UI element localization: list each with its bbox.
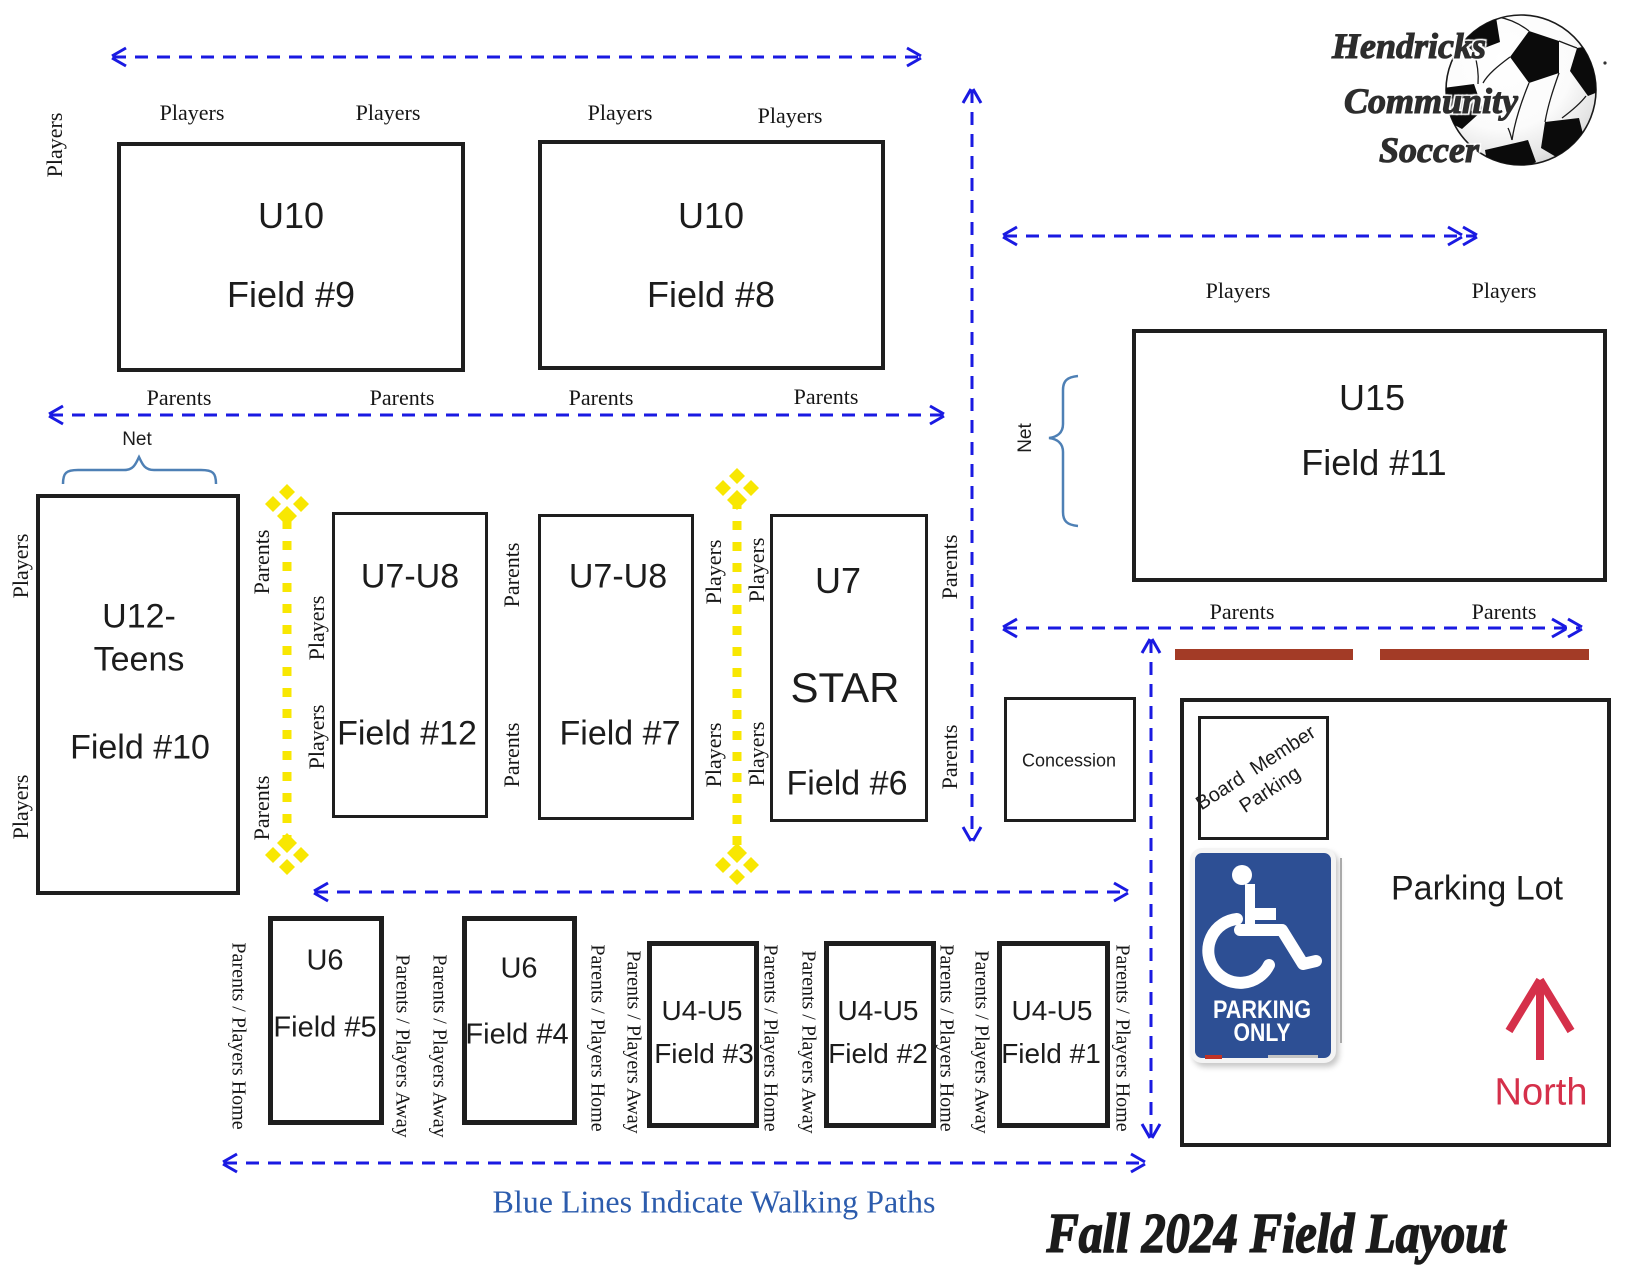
svg-text:ONLY: ONLY bbox=[1234, 1019, 1291, 1047]
